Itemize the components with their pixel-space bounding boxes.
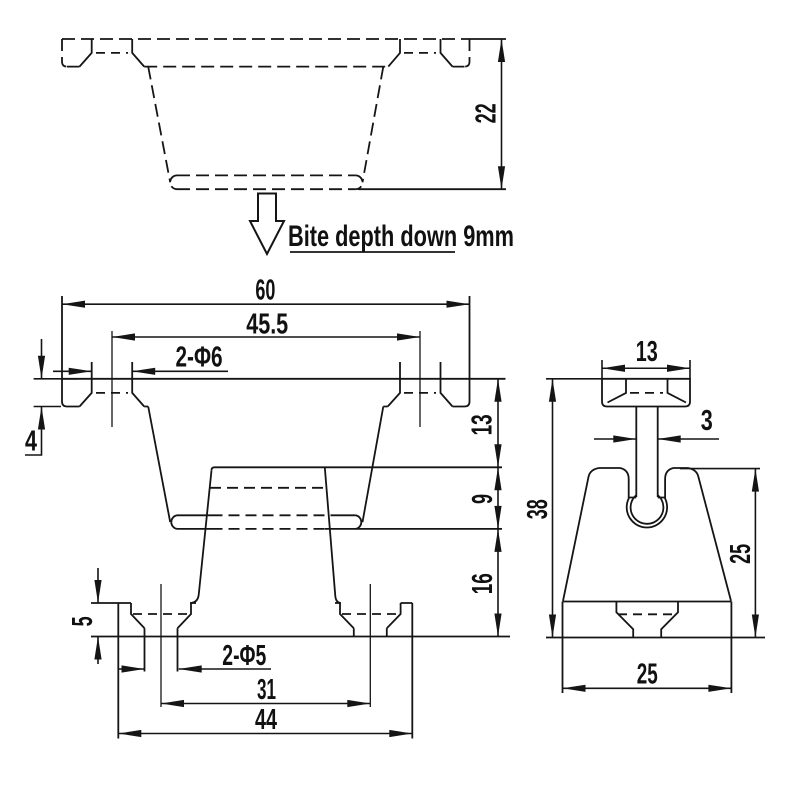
svg-text:4: 4	[25, 426, 37, 458]
svg-text:Bite depth down 9mm: Bite depth down 9mm	[288, 220, 514, 253]
svg-text:13: 13	[467, 414, 499, 435]
svg-text:31: 31	[257, 674, 276, 706]
svg-text:25: 25	[725, 544, 757, 564]
svg-text:13: 13	[636, 336, 658, 368]
svg-text:3: 3	[701, 405, 713, 437]
svg-text:38: 38	[522, 499, 554, 519]
svg-text:9: 9	[467, 494, 499, 504]
svg-text:16: 16	[467, 573, 499, 594]
svg-text:60: 60	[255, 275, 275, 307]
svg-text:25: 25	[637, 659, 658, 691]
svg-text:5: 5	[67, 616, 99, 626]
svg-text:45.5: 45.5	[246, 308, 288, 340]
svg-text:22: 22	[471, 103, 503, 123]
svg-text:2-Φ6: 2-Φ6	[176, 342, 223, 374]
svg-text:44: 44	[255, 704, 277, 736]
svg-text:2-Φ5: 2-Φ5	[222, 640, 266, 672]
